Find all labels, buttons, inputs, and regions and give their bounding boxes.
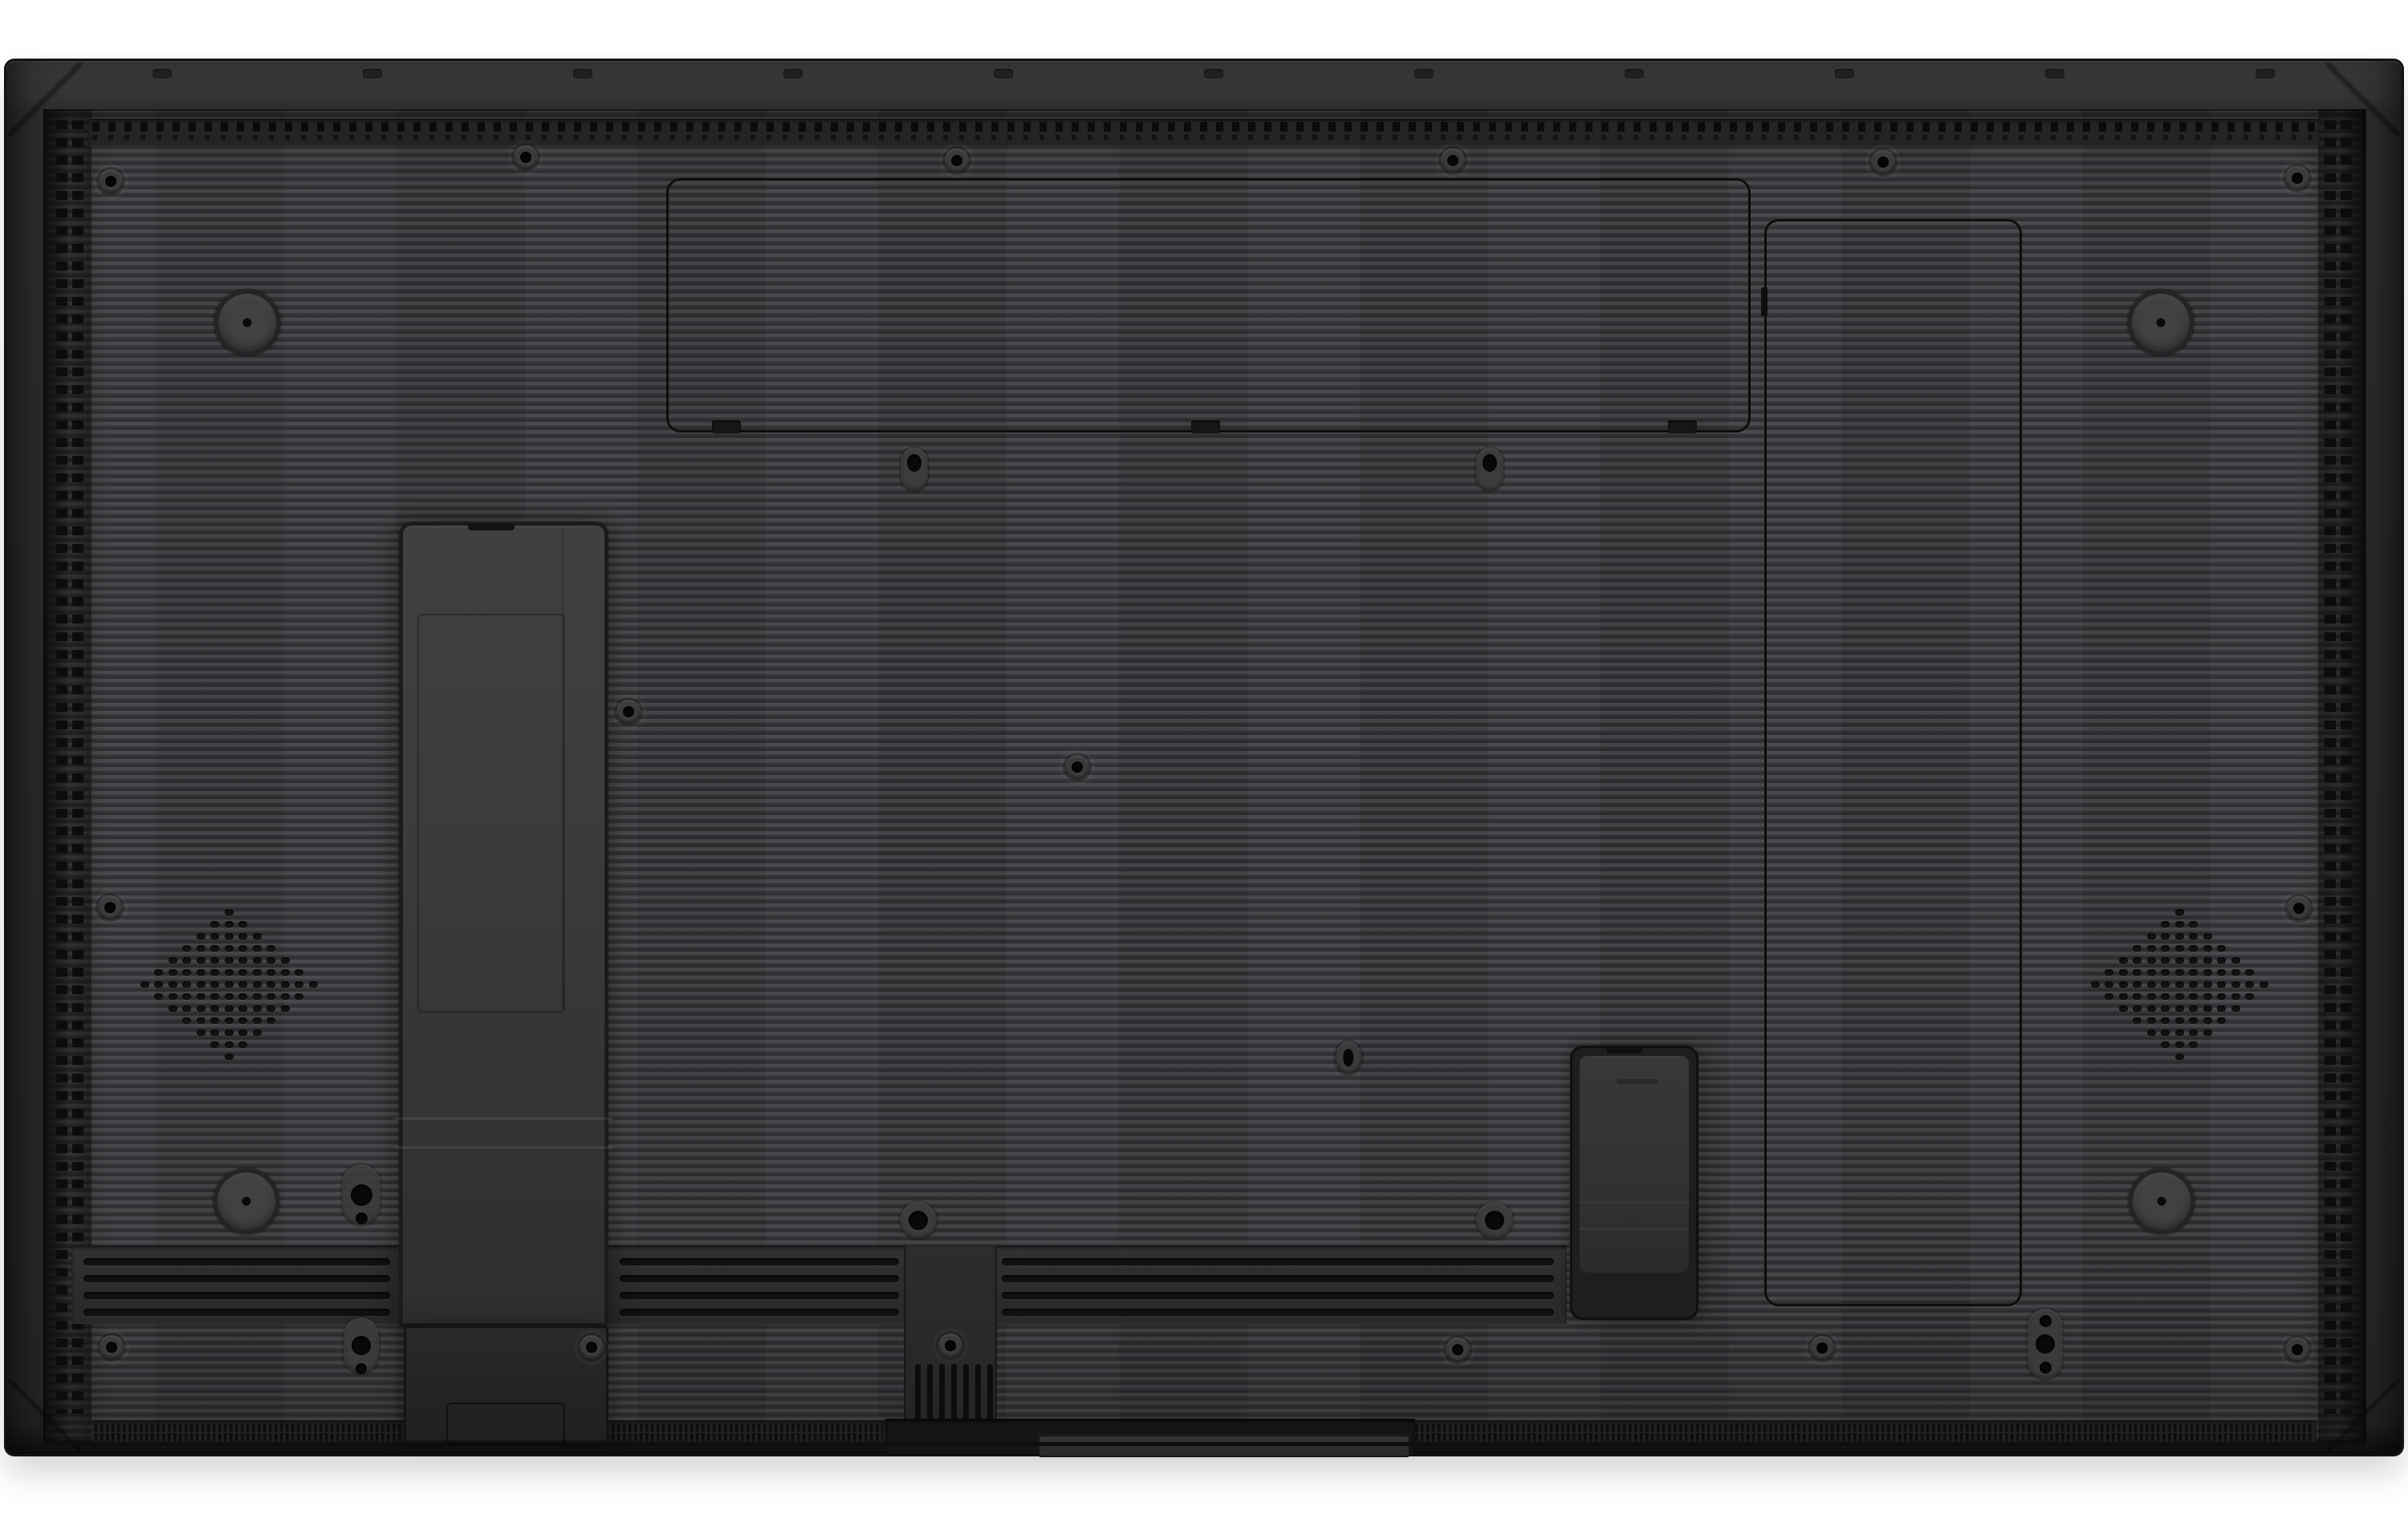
speaker-grille-hole xyxy=(2217,1005,2226,1012)
speaker-grille-hole xyxy=(2133,981,2142,988)
speaker-grille-hole xyxy=(2217,957,2226,964)
speaker-grille-hole xyxy=(2147,957,2156,964)
bezel-mould-mark xyxy=(783,69,803,79)
screw xyxy=(1810,1336,1834,1360)
speaker-grille-hole xyxy=(2161,969,2170,976)
speaker-grille-hole xyxy=(2161,945,2170,952)
speaker-grille-hole xyxy=(2203,1030,2212,1036)
speaker-grille-hole xyxy=(281,957,290,964)
speaker-grille-hole xyxy=(210,1005,219,1012)
speaker-grille-hole xyxy=(253,1030,262,1036)
speaker-grille-hole xyxy=(2133,945,2142,952)
screw xyxy=(2285,1338,2309,1362)
speaker-grille-hole xyxy=(238,1042,247,1048)
speaker-grille-hole xyxy=(2119,1005,2128,1012)
speaker-grille-hole xyxy=(295,969,303,976)
speaker-grille-hole xyxy=(2147,945,2156,952)
right-access-panel-latch-tick xyxy=(1761,287,1767,316)
side-vent-holes xyxy=(72,120,83,1414)
speaker-grille-hole xyxy=(2133,957,2142,964)
speaker-grille-hole xyxy=(2189,993,2198,1000)
speaker-grille-hole xyxy=(266,969,275,976)
speaker-grille-hole xyxy=(197,1005,205,1012)
right-access-panel-outline xyxy=(1764,219,2022,1306)
speaker-grille-hole xyxy=(197,933,205,940)
bezel-mould-mark xyxy=(994,69,1013,79)
speaker-grille-hole xyxy=(182,993,191,1000)
speaker-grille-hole xyxy=(2175,1054,2184,1060)
speaker-grille-hole xyxy=(253,993,262,1000)
speaker-grille-hole xyxy=(2231,1005,2240,1012)
cable-column-notch xyxy=(468,523,515,530)
screw xyxy=(616,700,641,724)
speaker-grille-hole xyxy=(2119,969,2128,976)
screw xyxy=(2285,166,2309,190)
keyhole-big-hole xyxy=(352,1336,371,1355)
heatsink-slot xyxy=(620,1258,899,1265)
speaker-grille-hole xyxy=(2203,993,2212,1000)
speaker-grille-hole xyxy=(2147,1017,2156,1024)
speaker-grille-hole xyxy=(210,921,219,928)
speaker-grille-hole xyxy=(2133,1005,2142,1012)
speaker-grille-hole xyxy=(2147,933,2156,940)
circular-recess xyxy=(2133,1172,2190,1230)
screw xyxy=(1065,755,1089,779)
speaker-grille-hole xyxy=(210,969,219,976)
speaker-grille-hole xyxy=(266,1005,275,1012)
speaker-grille-hole xyxy=(225,921,234,928)
bezel-mould-mark xyxy=(2255,69,2275,79)
speaker-grille-hole xyxy=(295,981,303,988)
ac-inlet-step-line xyxy=(1580,1201,1689,1204)
page: { "scene":{"description":"Rear view prod… xyxy=(0,0,2408,1515)
speaker-grille-hole xyxy=(2231,957,2240,964)
speaker-grille-hole xyxy=(281,993,290,1000)
speaker-grille-hole xyxy=(197,945,205,952)
screw xyxy=(1446,1338,1470,1362)
mount-boss-hole xyxy=(907,454,921,472)
speaker-grille-hole xyxy=(2161,933,2170,940)
speaker-grille-hole xyxy=(2147,981,2156,988)
speaker-grille-hole xyxy=(266,1017,275,1024)
screw xyxy=(938,1334,962,1358)
bezel-mould-mark xyxy=(153,69,172,79)
speaker-grille-hole xyxy=(2147,993,2156,1000)
speaker-grille-hole xyxy=(2245,993,2254,1000)
ac-inlet-face xyxy=(1580,1056,1689,1273)
ac-inlet-notch xyxy=(1607,1046,1642,1054)
speaker-grille-hole xyxy=(225,1005,234,1012)
screw xyxy=(514,145,538,169)
speaker-grille-hole xyxy=(2175,1042,2184,1048)
screw xyxy=(945,148,969,173)
bezel-mould-mark xyxy=(2045,69,2064,79)
heatsink-slot xyxy=(1002,1292,1554,1299)
speaker-grille-hole xyxy=(225,1017,234,1024)
keyhole-big-hole xyxy=(2036,1334,2055,1354)
side-vent-holes xyxy=(56,120,67,1414)
speaker-grille-hole xyxy=(238,957,247,964)
speaker-grille-hole xyxy=(295,993,303,1000)
speaker-grille-hole xyxy=(2231,993,2240,1000)
heatsink-slot xyxy=(1002,1275,1554,1282)
oval-screw xyxy=(1336,1042,1361,1074)
speaker-grille-hole xyxy=(182,945,191,952)
keyhole-small-hole xyxy=(2040,1315,2052,1327)
speaker-grille-hole xyxy=(238,921,247,928)
speaker-grille-hole xyxy=(266,945,275,952)
bezel-mould-mark xyxy=(1414,69,1434,79)
speaker-grille-hole xyxy=(2175,921,2184,928)
speaker-grille-hole xyxy=(2203,945,2212,952)
speaker-grille-hole xyxy=(225,957,234,964)
speaker-grille-hole xyxy=(2119,993,2128,1000)
ac-inlet-step-line xyxy=(1580,1228,1689,1230)
speaker-grille-hole xyxy=(182,1017,191,1024)
heatsink-slot xyxy=(83,1292,390,1299)
speaker-grille-hole xyxy=(2189,1042,2198,1048)
speaker-grille-hole xyxy=(266,981,275,988)
speaker-grille-hole xyxy=(210,1030,219,1036)
speaker-grille-hole xyxy=(2217,981,2226,988)
bottom-edge-line xyxy=(43,1442,2365,1446)
keyhole-small-hole xyxy=(356,1212,368,1225)
speaker-grille-hole xyxy=(225,1042,234,1048)
speaker-grille-hole xyxy=(210,957,219,964)
speaker-grille-hole xyxy=(2161,993,2170,1000)
speaker-grille-hole xyxy=(2189,933,2198,940)
speaker-grille-hole xyxy=(225,969,234,976)
circular-recess xyxy=(218,294,276,351)
bezel-mould-mark xyxy=(1835,69,1854,79)
circular-recess xyxy=(218,1172,275,1230)
speaker-grille-hole xyxy=(2175,945,2184,952)
speaker-grille-hole xyxy=(2147,969,2156,976)
speaker-grille-hole xyxy=(2175,957,2184,964)
speaker-grille-hole xyxy=(2105,969,2113,976)
speaker-grille-hole xyxy=(169,957,177,964)
speaker-grille-hole xyxy=(2161,1030,2170,1036)
speaker-grille-hole xyxy=(2175,993,2184,1000)
speaker-grille-hole xyxy=(2217,1017,2226,1024)
speaker-grille-hole xyxy=(154,981,163,988)
speaker-grille-hole xyxy=(154,969,163,976)
speaker-grille-hole xyxy=(253,1005,262,1012)
speaker-grille-hole xyxy=(2217,993,2226,1000)
speaker-grille-hole xyxy=(2189,921,2198,928)
left-edge-channel xyxy=(43,109,92,1442)
speaker-grille-hole xyxy=(2189,1005,2198,1012)
speaker-grille-hole xyxy=(2161,957,2170,964)
speaker-grille-hole xyxy=(140,981,149,988)
speaker-grille-hole xyxy=(2133,993,2142,1000)
speaker-grille-hole xyxy=(2147,1005,2156,1012)
top-access-panel-tab xyxy=(712,420,741,433)
speaker-grille-hole xyxy=(266,993,275,1000)
speaker-grille-hole xyxy=(238,945,247,952)
speaker-grille-hole xyxy=(238,1017,247,1024)
speaker-grille-hole xyxy=(210,945,219,952)
stand-mount-bar xyxy=(1038,1435,1410,1457)
speaker-grille-hole xyxy=(281,969,290,976)
speaker-grille-hole xyxy=(210,1017,219,1024)
cable-column-flare-line xyxy=(394,1146,613,1149)
bottom-vent-slits xyxy=(1415,1433,2314,1441)
heatsink-slot xyxy=(83,1275,390,1282)
mount-boss-hole xyxy=(1483,454,1497,472)
screw xyxy=(2287,896,2311,920)
speaker-grille-hole xyxy=(197,993,205,1000)
speaker-grille-hole xyxy=(225,945,234,952)
speaker-grille-hole xyxy=(169,993,177,1000)
speaker-grille-hole xyxy=(2203,1017,2212,1024)
speaker-grille-hole xyxy=(238,993,247,1000)
speaker-grille-hole xyxy=(238,1005,247,1012)
top-vent-row-small xyxy=(92,135,2316,140)
speaker-grille-hole xyxy=(2189,957,2198,964)
speaker-grille-hole xyxy=(2175,1017,2184,1024)
speaker-grille-hole xyxy=(210,993,219,1000)
speaker-grille-hole xyxy=(2161,1017,2170,1024)
speaker-grille-hole xyxy=(2175,969,2184,976)
speaker-grille-hole xyxy=(2245,969,2254,976)
speaker-grille-hole xyxy=(238,1030,247,1036)
speaker-grille-hole xyxy=(2203,981,2212,988)
mount-boss-hole xyxy=(909,1211,928,1230)
speaker-grille-hole xyxy=(2245,981,2254,988)
heatsink-slot xyxy=(1002,1258,1554,1265)
bezel-mould-mark xyxy=(363,69,382,79)
speaker-grille-hole xyxy=(2133,1017,2142,1024)
speaker-grille-hole xyxy=(225,909,234,916)
speaker-grille-hole xyxy=(2203,933,2212,940)
speaker-grille-hole xyxy=(2189,969,2198,976)
mount-boss-hole xyxy=(1485,1211,1504,1230)
cable-column-inner-outline xyxy=(417,614,565,1013)
speaker-grille-hole xyxy=(253,933,262,940)
speaker-grille-hole xyxy=(281,1005,290,1012)
speaker-grille-hole xyxy=(2231,969,2240,976)
speaker-grille-hole xyxy=(253,969,262,976)
keyhole-small-hole xyxy=(2040,1362,2052,1374)
heatsink-slot xyxy=(620,1292,899,1299)
speaker-grille-hole xyxy=(182,969,191,976)
speaker-grille-hole xyxy=(2133,969,2142,976)
speaker-grille-hole xyxy=(197,981,205,988)
speaker-grille-hole xyxy=(238,981,247,988)
speaker-grille-hole xyxy=(2119,981,2128,988)
keyhole-big-hole xyxy=(351,1184,372,1206)
top-access-panel-outline xyxy=(666,178,1751,433)
speaker-grille-hole xyxy=(2189,1030,2198,1036)
screw xyxy=(98,896,122,920)
speaker-grille-hole xyxy=(2217,945,2226,952)
speaker-grille-hole xyxy=(2175,1030,2184,1036)
speaker-grille-hole xyxy=(2189,981,2198,988)
speaker-grille-hole xyxy=(309,981,318,988)
speaker-grille-hole xyxy=(182,981,191,988)
speaker-grille-hole xyxy=(169,981,177,988)
speaker-grille-hole xyxy=(2161,921,2170,928)
heatsink-slot xyxy=(1002,1309,1554,1316)
speaker-grille-hole xyxy=(238,969,247,976)
speaker-grille-hole xyxy=(2175,933,2184,940)
speaker-grille-hole xyxy=(2119,957,2128,964)
speaker-grille-hole xyxy=(210,933,219,940)
screw xyxy=(100,1335,124,1359)
speaker-grille-hole xyxy=(197,957,205,964)
screw xyxy=(1871,150,1895,174)
bottom-vent-slits xyxy=(1415,1424,2314,1432)
speaker-grille-hole xyxy=(169,1005,177,1012)
decoration-layer xyxy=(0,0,2408,1515)
cable-column-base-plate-outline xyxy=(446,1403,565,1444)
speaker-grille-hole xyxy=(2231,981,2240,988)
speaker-grille-hole xyxy=(154,993,163,1000)
speaker-grille-hole xyxy=(225,1030,234,1036)
speaker-grille-hole xyxy=(2105,981,2113,988)
speaker-grille-hole xyxy=(210,1042,219,1048)
speaker-grille-hole xyxy=(2147,1030,2156,1036)
side-vent-holes xyxy=(2325,120,2336,1414)
speaker-grille-hole xyxy=(2189,945,2198,952)
speaker-grille-hole xyxy=(2161,1005,2170,1012)
speaker-grille-hole xyxy=(225,1054,234,1060)
speaker-grille-hole xyxy=(2161,1042,2170,1048)
heatsink-slot xyxy=(620,1275,899,1282)
heatsink-slot xyxy=(83,1309,390,1316)
top-access-panel-tab xyxy=(1668,420,1697,433)
speaker-grille-hole xyxy=(2203,957,2212,964)
speaker-grille-hole xyxy=(2203,1005,2212,1012)
speaker-grille-hole xyxy=(238,933,247,940)
speaker-grille-hole xyxy=(2260,981,2268,988)
cable-column-flare-line xyxy=(394,1117,613,1120)
speaker-grille-hole xyxy=(266,957,275,964)
speaker-grille-hole xyxy=(253,945,262,952)
circular-recess xyxy=(2132,294,2190,351)
keyhole-small-hole xyxy=(356,1363,367,1375)
speaker-grille-hole xyxy=(2175,909,2184,916)
bezel-mould-mark xyxy=(573,69,592,79)
speaker-grille-hole xyxy=(2217,969,2226,976)
speaker-grille-hole xyxy=(210,981,219,988)
speaker-grille-hole xyxy=(2091,981,2100,988)
screw xyxy=(1441,148,1465,173)
speaker-grille-hole xyxy=(197,1030,205,1036)
speaker-grille-hole xyxy=(2189,1017,2198,1024)
screw xyxy=(99,169,123,193)
speaker-grille-hole xyxy=(225,993,234,1000)
bezel-mould-mark xyxy=(1625,69,1644,79)
speaker-grille-hole xyxy=(281,981,290,988)
side-vent-holes xyxy=(2341,120,2352,1414)
cable-column-seam xyxy=(562,528,563,1009)
speaker-grille-hole xyxy=(197,969,205,976)
heatsink-slot xyxy=(83,1258,390,1265)
speaker-grille-hole xyxy=(253,981,262,988)
speaker-grille-hole xyxy=(225,981,234,988)
speaker-grille-hole xyxy=(2175,1005,2184,1012)
speaker-grille-hole xyxy=(182,1005,191,1012)
speaker-grille-hole xyxy=(182,957,191,964)
speaker-grille-hole xyxy=(253,957,262,964)
bezel-mould-mark xyxy=(1204,69,1223,79)
top-vent-row-large xyxy=(92,122,2316,132)
speaker-grille-hole xyxy=(2175,981,2184,988)
speaker-grille-hole xyxy=(253,1017,262,1024)
heatsink-slot xyxy=(620,1309,899,1316)
top-access-panel-tab xyxy=(1191,420,1220,433)
speaker-grille-hole xyxy=(2203,969,2212,976)
speaker-grille-hole xyxy=(2105,993,2113,1000)
screw xyxy=(580,1335,604,1359)
speaker-grille-hole xyxy=(2161,981,2170,988)
speaker-grille-hole xyxy=(197,1017,205,1024)
ac-inlet-label-dash xyxy=(1617,1079,1658,1084)
speaker-grille-hole xyxy=(169,969,177,976)
speaker-grille-hole xyxy=(225,933,234,940)
